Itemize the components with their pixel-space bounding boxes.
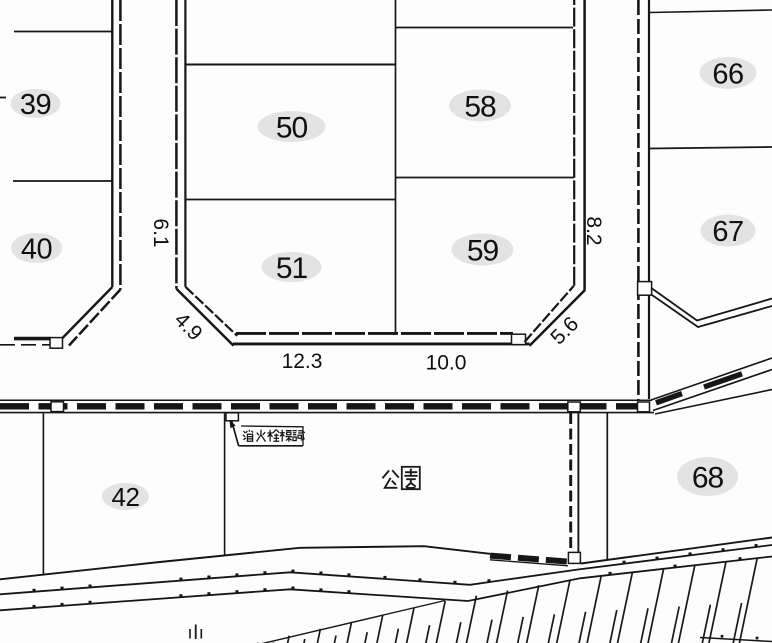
svg-text:10.0: 10.0 bbox=[426, 352, 467, 375]
svg-text:51: 51 bbox=[276, 252, 308, 285]
svg-text:40: 40 bbox=[21, 234, 52, 266]
svg-text:42: 42 bbox=[112, 482, 140, 512]
svg-text:6.1: 6.1 bbox=[149, 218, 172, 247]
svg-text:59: 59 bbox=[467, 234, 499, 267]
svg-text:12.3: 12.3 bbox=[282, 350, 323, 373]
svg-text:67: 67 bbox=[712, 216, 743, 248]
svg-text:68: 68 bbox=[692, 461, 724, 494]
svg-text:39: 39 bbox=[20, 89, 51, 121]
svg-text:58: 58 bbox=[464, 90, 496, 123]
svg-text:66: 66 bbox=[712, 59, 743, 91]
svg-text:50: 50 bbox=[276, 111, 308, 144]
svg-text:8.2: 8.2 bbox=[582, 216, 605, 245]
